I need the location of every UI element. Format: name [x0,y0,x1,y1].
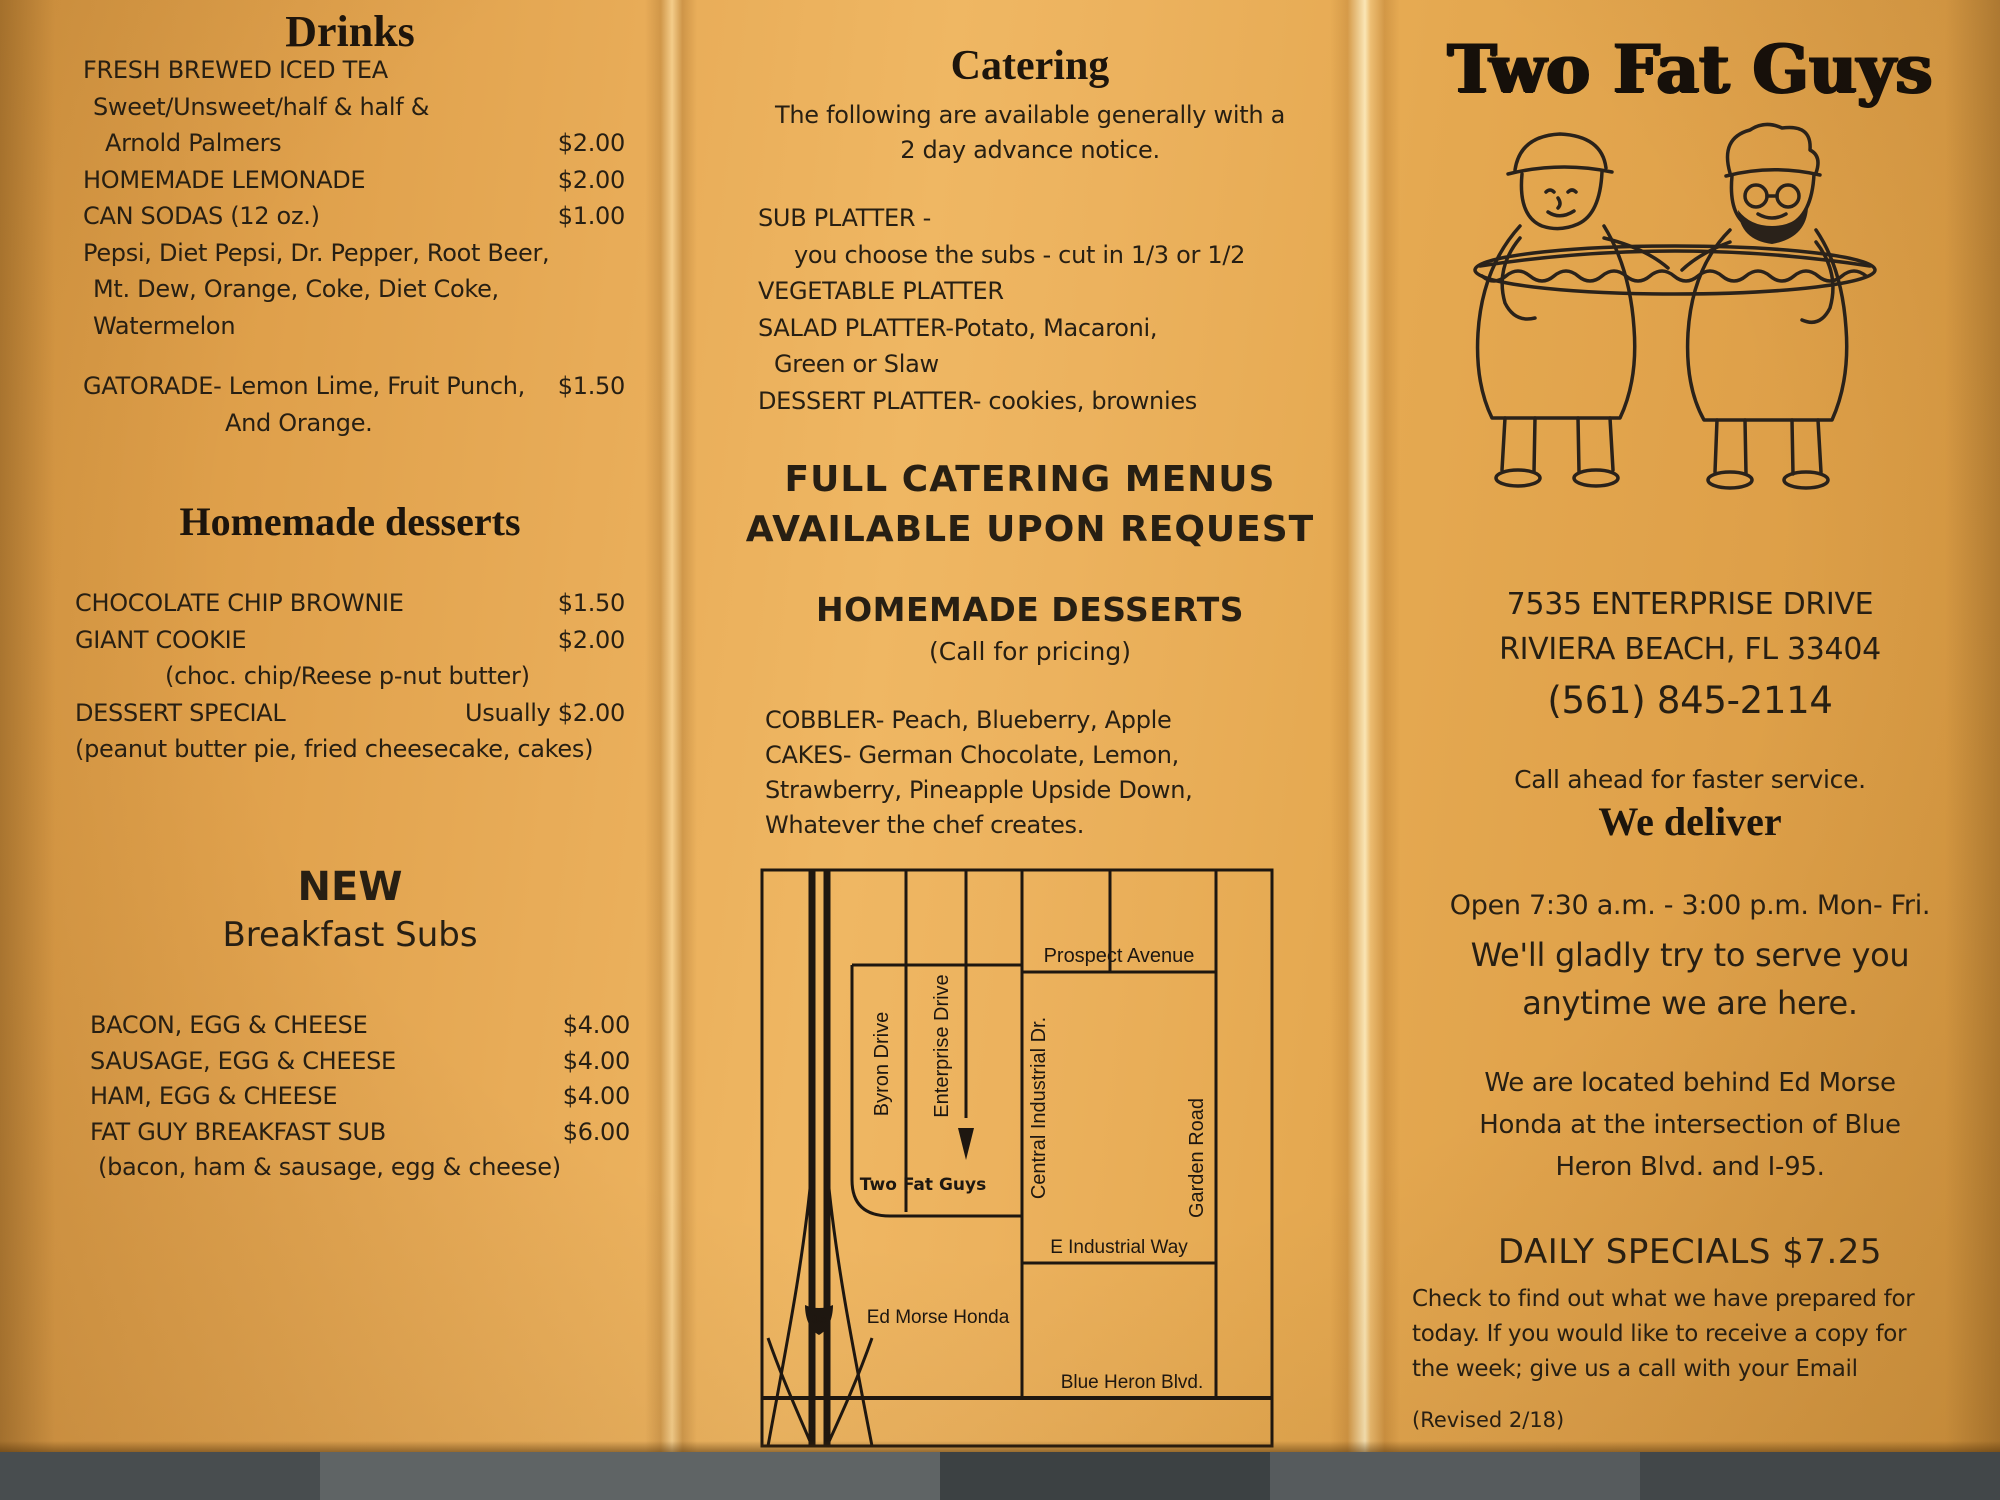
call-for-pricing-note: (Call for pricing) [700,637,1360,666]
item-name: And Orange. [75,405,625,442]
menu-item-row: SAUSAGE, EGG & CHEESE $4.00 [90,1044,630,1080]
daily-specials-line: today. If you would like to receive a co… [1412,1317,1978,1352]
located-line: We are located behind Ed Morse [1400,1062,1980,1104]
menu-item-row: Watermelon [75,308,625,345]
platter-line: VEGETABLE PLATTER [758,273,1340,310]
map-label-e-industrial-way: E Industrial Way [1050,1237,1188,1258]
daily-specials-line: Check to find out what we have prepared … [1412,1282,1978,1317]
map-label-byron-drive: Byron Drive [871,1012,893,1116]
menu-item-row: GATORADE- Lemon Lime, Fruit Punch, $1.50 [75,368,625,405]
map-arrow-icon [958,1128,974,1160]
menu-item-row: Pepsi, Diet Pepsi, Dr. Pepper, Root Beer… [75,235,625,272]
item-price: $4.00 [563,1044,630,1080]
item-name: CHOCOLATE CHIP BROWNIE [75,585,404,622]
drinks-list: FRESH BREWED ICED TEA Sweet/Unsweet/half… [75,52,625,344]
chef-beard [1738,208,1808,244]
item-price: $4.00 [563,1079,630,1115]
item-price: $1.00 [558,198,625,235]
item-note: (peanut butter pie, fried cheesecake, ca… [75,731,625,768]
daily-specials-heading: DAILY SPECIALS $7.25 [1400,1232,1980,1272]
homemade-desserts-heading: HOMEMADE DESSERTS [700,590,1360,629]
breakfast-heading-block: NEW Breakfast Subs [70,862,630,958]
item-name: DESSERT SPECIAL [75,695,286,732]
item-name: FAT GUY BREAKFAST SUB [90,1115,386,1151]
hours-block: Open 7:30 a.m. - 3:00 p.m. Mon- Fri. We'… [1400,888,1980,1027]
full-catering-note: FULL CATERING MENUS AVAILABLE UPON REQUE… [700,455,1360,555]
menu-item-row: Sweet/Unsweet/half & half & [75,89,625,126]
phone-number: (561) 845-2114 [1400,678,1980,723]
item-name: GATORADE- Lemon Lime, Fruit Punch, [75,368,525,405]
table-background [0,1452,2000,1500]
menu-item-row: CAN SODAS (12 oz.) $1.00 [75,198,625,235]
opening-hours: Open 7:30 a.m. - 3:00 p.m. Mon- Fri. [1400,888,1980,923]
item-price: $2.00 [558,622,625,659]
address-line-2: RIVIERA BEACH, FL 33404 [1400,627,1980,672]
item-price: $6.00 [563,1115,630,1151]
i95-ramp [768,1338,812,1446]
item-price: $1.50 [558,585,625,622]
catering-heading: Catering [720,42,1340,90]
map-label-garden-road: Garden Road [1186,1098,1208,1218]
full-catering-line: AVAILABLE UPON REQUEST [700,505,1360,555]
breakfast-subs-heading: Breakfast Subs [70,912,630,958]
menu-item-row: HOMEMADE LEMONADE $2.00 [75,162,625,199]
call-ahead-note: Call ahead for faster service. [1400,762,1980,797]
homemade-desserts-block: HOMEMADE DESSERTS (Call for pricing) [700,590,1360,666]
menu-item-row: HAM, EGG & CHEESE $4.00 [90,1079,630,1115]
dessert-line: Strawberry, Pineapple Upside Down, [765,773,1340,808]
i95-shield-label: 95 [812,1311,826,1326]
located-line: Honda at the intersection of Blue [1400,1104,1980,1146]
located-block: We are located behind Ed Morse Honda at … [1400,1062,1980,1188]
item-note: (choc. chip/Reese p-nut butter) [75,658,625,695]
menu-item-row: FRESH BREWED ICED TEA [75,52,625,89]
serve-line-1: We'll gladly try to serve you [1400,931,1980,979]
map-label-enterprise-drive: Enterprise Drive [931,974,953,1117]
item-name: HOMEMADE LEMONADE [75,162,365,199]
platter-list: SUB PLATTER - you choose the subs - cut … [758,200,1340,419]
gatorade-block: GATORADE- Lemon Lime, Fruit Punch, $1.50… [75,368,625,441]
item-name: Watermelon [75,308,235,345]
item-price: $1.50 [558,368,625,405]
menu-photo: Drinks FRESH BREWED ICED TEA Sweet/Unswe… [0,0,2000,1500]
map-label-prospect-avenue: Prospect Avenue [1044,945,1195,967]
catering-intro-line: The following are available generally wi… [720,98,1340,133]
new-label: NEW [70,862,630,912]
catering-intro-line: 2 day advance notice. [720,133,1340,168]
item-name: FRESH BREWED ICED TEA [75,52,388,89]
map-label-ed-morse-honda: Ed Morse Honda [867,1307,1010,1328]
chef-cap [1515,134,1606,170]
location-map: 95 Byron Drive Enterprise Drive Central … [760,868,1274,1448]
two-fat-guys-illustration [1420,118,1940,518]
menu-item-row: BACON, EGG & CHEESE $4.00 [90,1008,630,1044]
menu-item-row: Arnold Palmers $2.00 [75,125,625,162]
platter-line: SUB PLATTER - [758,200,1340,237]
address-line-1: 7535 ENTERPRISE DRIVE [1400,582,1980,627]
chef-toque [1728,124,1819,173]
cobbler-cakes-list: COBBLER- Peach, Blueberry, Apple CAKES- … [765,703,1340,843]
platter-line: DESSERT PLATTER- cookies, brownies [758,383,1340,420]
dessert-line: COBBLER- Peach, Blueberry, Apple [765,703,1340,738]
item-price: Usually $2.00 [465,695,625,732]
serve-line-2: anytime we are here. [1400,979,1980,1027]
daily-specials-body: Check to find out what we have prepared … [1412,1282,1978,1387]
restaurant-logo: Two Fat Guys [1400,30,1980,108]
full-catering-line: FULL CATERING MENUS [700,455,1360,505]
dessert-line: Whatever the chef creates. [765,808,1340,843]
map-label-central-industrial: Central Industrial Dr. [1028,1017,1050,1199]
item-note: (bacon, ham & sausage, egg & cheese) [90,1150,630,1186]
dessert-line: CAKES- German Chocolate, Lemon, [765,738,1340,773]
map-label-two-fat-guys: Two Fat Guys [860,1175,986,1195]
item-name: Sweet/Unsweet/half & half & [75,89,429,126]
catering-intro: The following are available generally wi… [720,98,1340,168]
desserts-list: CHOCOLATE CHIP BROWNIE $1.50 GIANT COOKI… [75,585,625,768]
menu-item-row: CHOCOLATE CHIP BROWNIE $1.50 [75,585,625,622]
menu-item-row: DESSERT SPECIAL Usually $2.00 [75,695,625,732]
item-name: BACON, EGG & CHEESE [90,1008,367,1044]
platter-line: Green or Slaw [758,346,1340,383]
item-name: CAN SODAS (12 oz.) [75,198,320,235]
revised-date: (Revised 2/18) [1412,1408,1564,1432]
we-deliver-heading: We deliver [1400,798,1980,845]
paper-bottom-edge [0,1441,2000,1452]
chef-head [1521,172,1602,229]
platter-line: you choose the subs - cut in 1/3 or 1/2 [758,237,1340,274]
daily-specials-line: the week; give us a call with your Email [1412,1352,1978,1387]
item-name: Arnold Palmers [75,125,281,162]
breakfast-list: BACON, EGG & CHEESE $4.00 SAUSAGE, EGG &… [90,1008,630,1186]
item-price: $2.00 [558,125,625,162]
item-name: GIANT COOKIE [75,622,246,659]
item-name: Pepsi, Diet Pepsi, Dr. Pepper, Root Beer… [75,235,549,272]
item-name: Mt. Dew, Orange, Coke, Diet Coke, [75,271,499,308]
item-name: SAUSAGE, EGG & CHEESE [90,1044,396,1080]
menu-item-row: Mt. Dew, Orange, Coke, Diet Coke, [75,271,625,308]
drinks-heading: Drinks [70,6,630,57]
map-label-blue-heron-blvd: Blue Heron Blvd. [1061,1372,1204,1393]
glasses-icon [1745,185,1767,207]
located-line: Heron Blvd. and I-95. [1400,1146,1980,1188]
menu-item-row: GIANT COOKIE $2.00 [75,622,625,659]
platter-line: SALAD PLATTER-Potato, Macaroni, [758,310,1340,347]
menu-item-row: FAT GUY BREAKFAST SUB $6.00 [90,1115,630,1151]
sub-sandwich [1475,246,1875,294]
item-name: HAM, EGG & CHEESE [90,1079,337,1115]
address-block: 7535 ENTERPRISE DRIVE RIVIERA BEACH, FL … [1400,582,1980,723]
chef-body [1478,226,1635,418]
desserts-heading: Homemade desserts [70,498,630,545]
item-price: $2.00 [558,162,625,199]
i95-ramp [827,1338,872,1446]
item-price: $4.00 [563,1008,630,1044]
